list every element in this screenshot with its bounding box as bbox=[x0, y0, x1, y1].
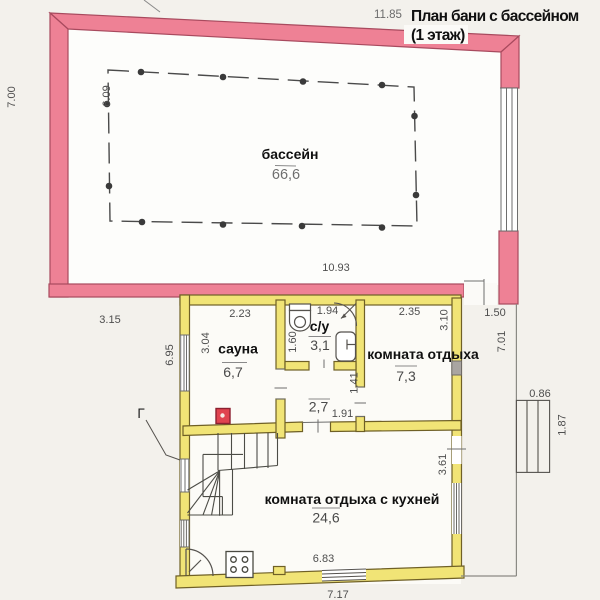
svg-text:3,1: 3,1 bbox=[310, 337, 330, 353]
svg-text:3.61: 3.61 bbox=[437, 454, 449, 475]
svg-text:7,3: 7,3 bbox=[396, 368, 416, 384]
svg-text:11.85: 11.85 bbox=[374, 9, 402, 21]
svg-text:6,7: 6,7 bbox=[223, 364, 243, 380]
svg-text:24,6: 24,6 bbox=[312, 510, 339, 526]
svg-text:6.09: 6.09 bbox=[101, 85, 113, 106]
svg-text:комната отдыха: комната отдыха bbox=[367, 346, 479, 362]
svg-text:10.93: 10.93 bbox=[322, 262, 350, 274]
svg-text:6.95: 6.95 bbox=[164, 344, 176, 365]
svg-text:бассейн: бассейн bbox=[262, 146, 319, 162]
svg-text:1.41: 1.41 bbox=[349, 372, 361, 393]
svg-text:Г: Г bbox=[137, 406, 145, 421]
svg-text:1.87: 1.87 bbox=[557, 414, 569, 435]
svg-text:с/у: с/у bbox=[310, 318, 330, 334]
svg-text:сауна: сауна bbox=[218, 341, 258, 357]
svg-text:План бани с бассейном: План бани с бассейном bbox=[411, 8, 579, 25]
svg-text:7.01: 7.01 bbox=[496, 331, 508, 352]
svg-text:2,7: 2,7 bbox=[309, 399, 329, 415]
svg-text:3.04: 3.04 bbox=[200, 332, 212, 353]
svg-text:0.86: 0.86 bbox=[529, 388, 550, 400]
svg-text:66,6: 66,6 bbox=[272, 167, 300, 183]
svg-text:7.00: 7.00 bbox=[6, 86, 18, 107]
svg-text:1.50: 1.50 bbox=[484, 307, 505, 319]
svg-text:(1 этаж): (1 этаж) bbox=[411, 27, 465, 44]
svg-text:1.94: 1.94 bbox=[317, 305, 338, 317]
svg-text:7.17: 7.17 bbox=[327, 589, 348, 600]
svg-text:комната отдыха с кухней: комната отдыха с кухней bbox=[265, 491, 440, 507]
svg-text:2.23: 2.23 bbox=[229, 308, 250, 320]
svg-text:1.60: 1.60 bbox=[287, 331, 299, 352]
svg-text:2.35: 2.35 bbox=[399, 306, 420, 318]
svg-text:3.15: 3.15 bbox=[99, 314, 120, 326]
svg-text:3.10: 3.10 bbox=[439, 309, 451, 330]
svg-text:1.91: 1.91 bbox=[332, 408, 353, 420]
svg-text:6.83: 6.83 bbox=[313, 553, 334, 565]
